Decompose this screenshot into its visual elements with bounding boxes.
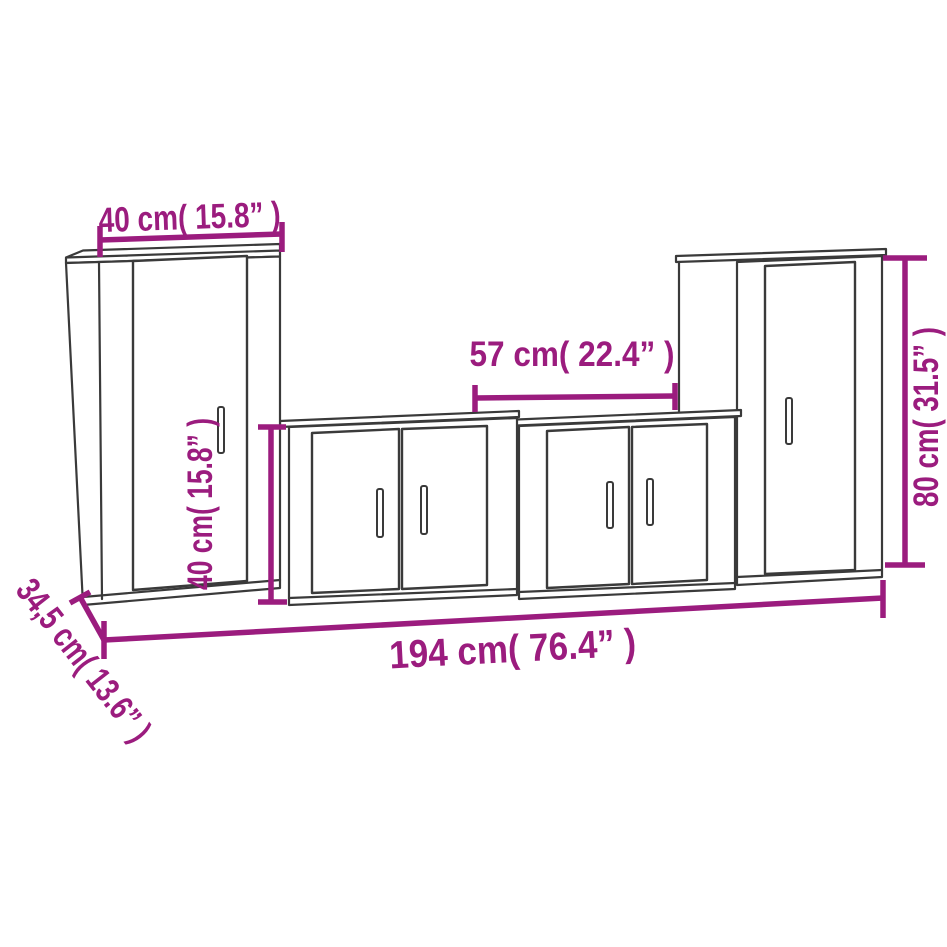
door-handle [607, 482, 613, 528]
cabinet-door-left [312, 429, 399, 593]
door-handle [377, 489, 383, 537]
dimension-label-top-width: 40 cm( 15.8” ) [98, 195, 281, 240]
cabinet-short-center-right [505, 410, 741, 599]
dimension-label-tall-height: 80 cm( 31.5” ) [907, 327, 946, 507]
cabinet-door-right [632, 424, 707, 584]
cabinet-short-center-left [280, 411, 519, 605]
dim-unit-width: 57 cm( 22.4” ) [470, 335, 676, 412]
product-dimension-diagram: 40 cm( 15.8” ) 57 cm( 22.4” ) 80 cm( 31.… [0, 0, 947, 947]
cabinet-tall-left [66, 244, 280, 605]
door-handle [786, 398, 792, 444]
cabinet-door-right [402, 426, 487, 589]
cabinet-door-left [547, 427, 629, 588]
door-handle [421, 486, 427, 534]
dimension-label-total-width: 194 cm( 76.4” ) [388, 622, 637, 678]
dimension-label-short-height: 40 cm( 15.8” ) [181, 418, 220, 590]
door-handle [647, 479, 653, 525]
dim-tall-height: 80 cm( 31.5” ) [883, 258, 946, 565]
cabinet-door [765, 262, 855, 574]
dimension-label-unit-width: 57 cm( 22.4” ) [470, 335, 675, 374]
dimension-diagram-canvas: 40 cm( 15.8” ) 57 cm( 22.4” ) 80 cm( 31.… [0, 0, 947, 947]
dimension-line [475, 396, 675, 398]
